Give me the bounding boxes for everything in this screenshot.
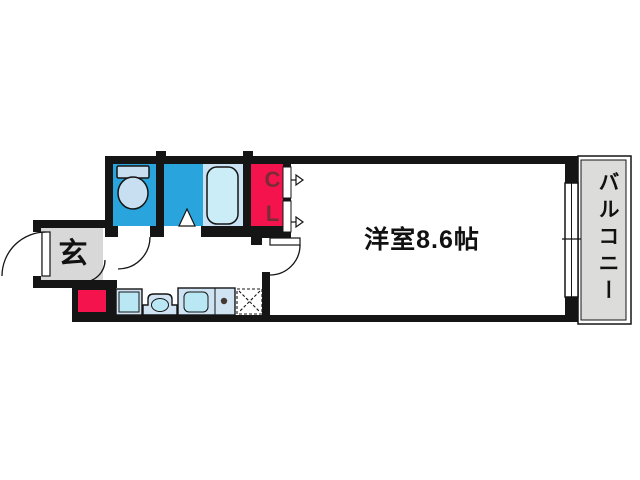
wall-segment: [243, 151, 253, 157]
entrance-door-opening: [33, 232, 41, 276]
sliding-window-icon: [562, 183, 581, 297]
entrance-door-leaf: [42, 232, 50, 276]
wall-segment: [565, 297, 578, 322]
toilet-tank: [117, 166, 149, 178]
wall-segment: [156, 151, 166, 157]
closet-door-arrow-icon: [296, 175, 303, 185]
stove-space-icon: [237, 289, 262, 314]
burner-dot: [221, 298, 227, 304]
kitchen-sink-icon: [184, 292, 208, 312]
kitchen-fixtures: [116, 288, 262, 315]
utility-space: [78, 290, 106, 312]
floor-plan: 玄 洋室8.6帖 CL バルコニー: [0, 0, 640, 480]
toilet-door-swing-arc-icon: [118, 237, 150, 269]
room-door-opening: [262, 238, 270, 272]
bathtub-icon: [207, 167, 238, 224]
toilet-bowl: [118, 177, 148, 209]
balcony-label: バルコニー: [592, 171, 622, 306]
bath-door-opening: [164, 226, 201, 237]
toilet-door-opening: [118, 226, 150, 237]
wall-segment: [565, 156, 578, 183]
wall-segment: [33, 280, 117, 288]
main-room-label: 洋室8.6帖: [312, 225, 532, 255]
washing-machine-pan-inner: [119, 292, 139, 312]
closet-door-arrow-icon: [296, 217, 303, 227]
room-door-leaf: [270, 238, 300, 245]
closet-label: CL: [259, 167, 285, 235]
wall-segment: [105, 156, 113, 230]
wall-segment: [105, 156, 578, 164]
toilet-icon: [117, 166, 149, 209]
wall-segment: [36, 220, 112, 228]
room-door-swing-arc-icon: [270, 245, 300, 275]
wall-segment: [72, 315, 578, 322]
washbasin-bowl: [152, 299, 169, 312]
entrance-label: 玄: [56, 237, 90, 271]
